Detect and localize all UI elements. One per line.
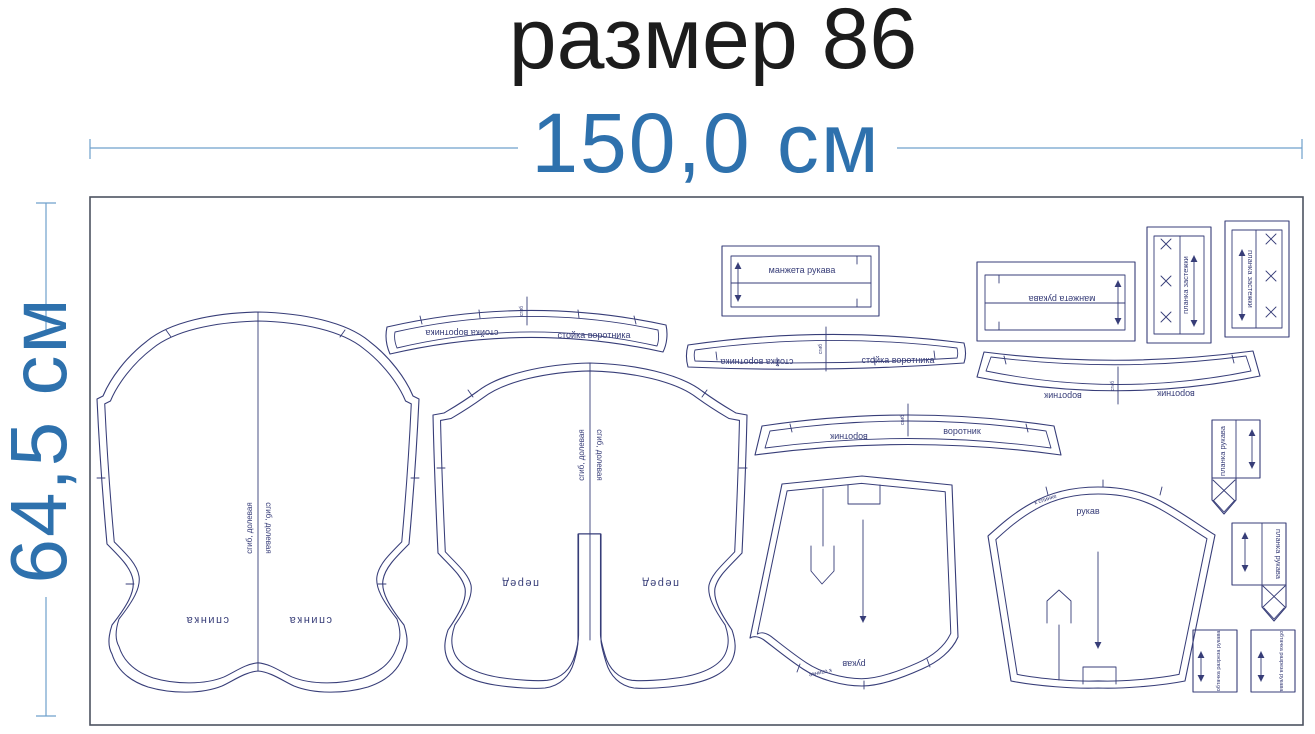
cuff-1-label: манжета рукава (769, 265, 836, 275)
collar-2-label-right: воротник (943, 426, 981, 436)
sleeve-placket-1-label: планка рукава (1218, 425, 1227, 476)
height-dimension: 64,5 см (0, 203, 83, 716)
collar-stand-2-label-left: стойка воротника (721, 357, 794, 367)
sleeve-placket-2-label: планка рукава (1274, 529, 1283, 580)
collar-1-label-right: воротник (1157, 389, 1195, 399)
fabric-sheet (90, 197, 1303, 725)
pattern-layout-page: размер 86 150,0 см 64,5 см сгиб, долевая… (0, 0, 1315, 734)
front-fold-label-left: сгиб, долевая (577, 429, 586, 480)
cuff-2-label: манжета рукава (1029, 294, 1096, 304)
height-dimension-label: 64,5 см (0, 297, 83, 584)
sleeve-1-label: рукав (842, 659, 866, 669)
front-fold-label-right: сгиб, долевая (595, 429, 604, 480)
back-name-label-left: спинка (185, 614, 229, 626)
front-name-label-right: перед (641, 577, 679, 589)
slit-facing-1-label: обтачка разреза рукава (1216, 630, 1222, 691)
pattern-sheet-svg: размер 86 150,0 см 64,5 см сгиб, долевая… (0, 0, 1315, 734)
page-title: размер 86 (509, 0, 917, 87)
front-name-label-left: перед (501, 577, 539, 589)
collar-stand-2-label-right: стойка воротника (862, 355, 935, 365)
back-name-label-right: спинка (288, 614, 332, 626)
placket-2-label: планка застежки (1246, 250, 1255, 308)
placket-1-label: планка застежки (1181, 256, 1190, 314)
width-dimension: 150,0 см (90, 96, 1302, 190)
collar-2-label-left: воротник (830, 432, 868, 442)
back-fold-label-left: сгиб, долевая (245, 502, 254, 553)
collar-2-fold-label: сгиб (900, 415, 906, 425)
slit-facing-2-label: обтачка разреза рукава (1278, 631, 1284, 692)
sleeve-2-label: рукав (1076, 506, 1100, 516)
collar-stand-2-fold-label: сгиб (818, 344, 824, 354)
collar-1-label-left: воротник (1044, 391, 1082, 401)
width-dimension-label: 150,0 см (531, 96, 880, 190)
back-fold-label-right: сгиб, долевая (264, 502, 273, 553)
collar-stand-1-fold-label: сгиб (519, 306, 525, 316)
collar-stand-1-label-left: стойка воротника (426, 328, 499, 338)
collar-1-fold-label: сгиб (1110, 381, 1116, 391)
collar-stand-1-label-right: стойка воротника (558, 330, 631, 340)
